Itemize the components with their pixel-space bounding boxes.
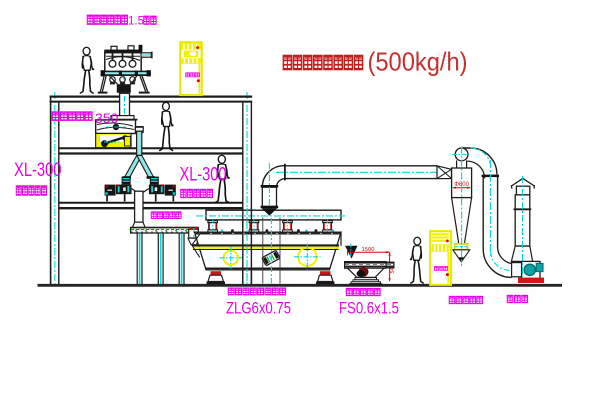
svg-text:XL-300: XL-300	[14, 160, 62, 181]
svg-text:ZLG6x0.75: ZLG6x0.75	[226, 299, 291, 318]
svg-text:1.5: 1.5	[128, 15, 144, 27]
svg-text:1500: 1500	[362, 247, 375, 253]
svg-text:FS0.6x1.5: FS0.6x1.5	[339, 299, 399, 318]
svg-text:350: 350	[95, 110, 119, 126]
svg-text:XL-300: XL-300	[180, 165, 227, 186]
svg-text:(500kg/h): (500kg/h)	[368, 47, 468, 77]
